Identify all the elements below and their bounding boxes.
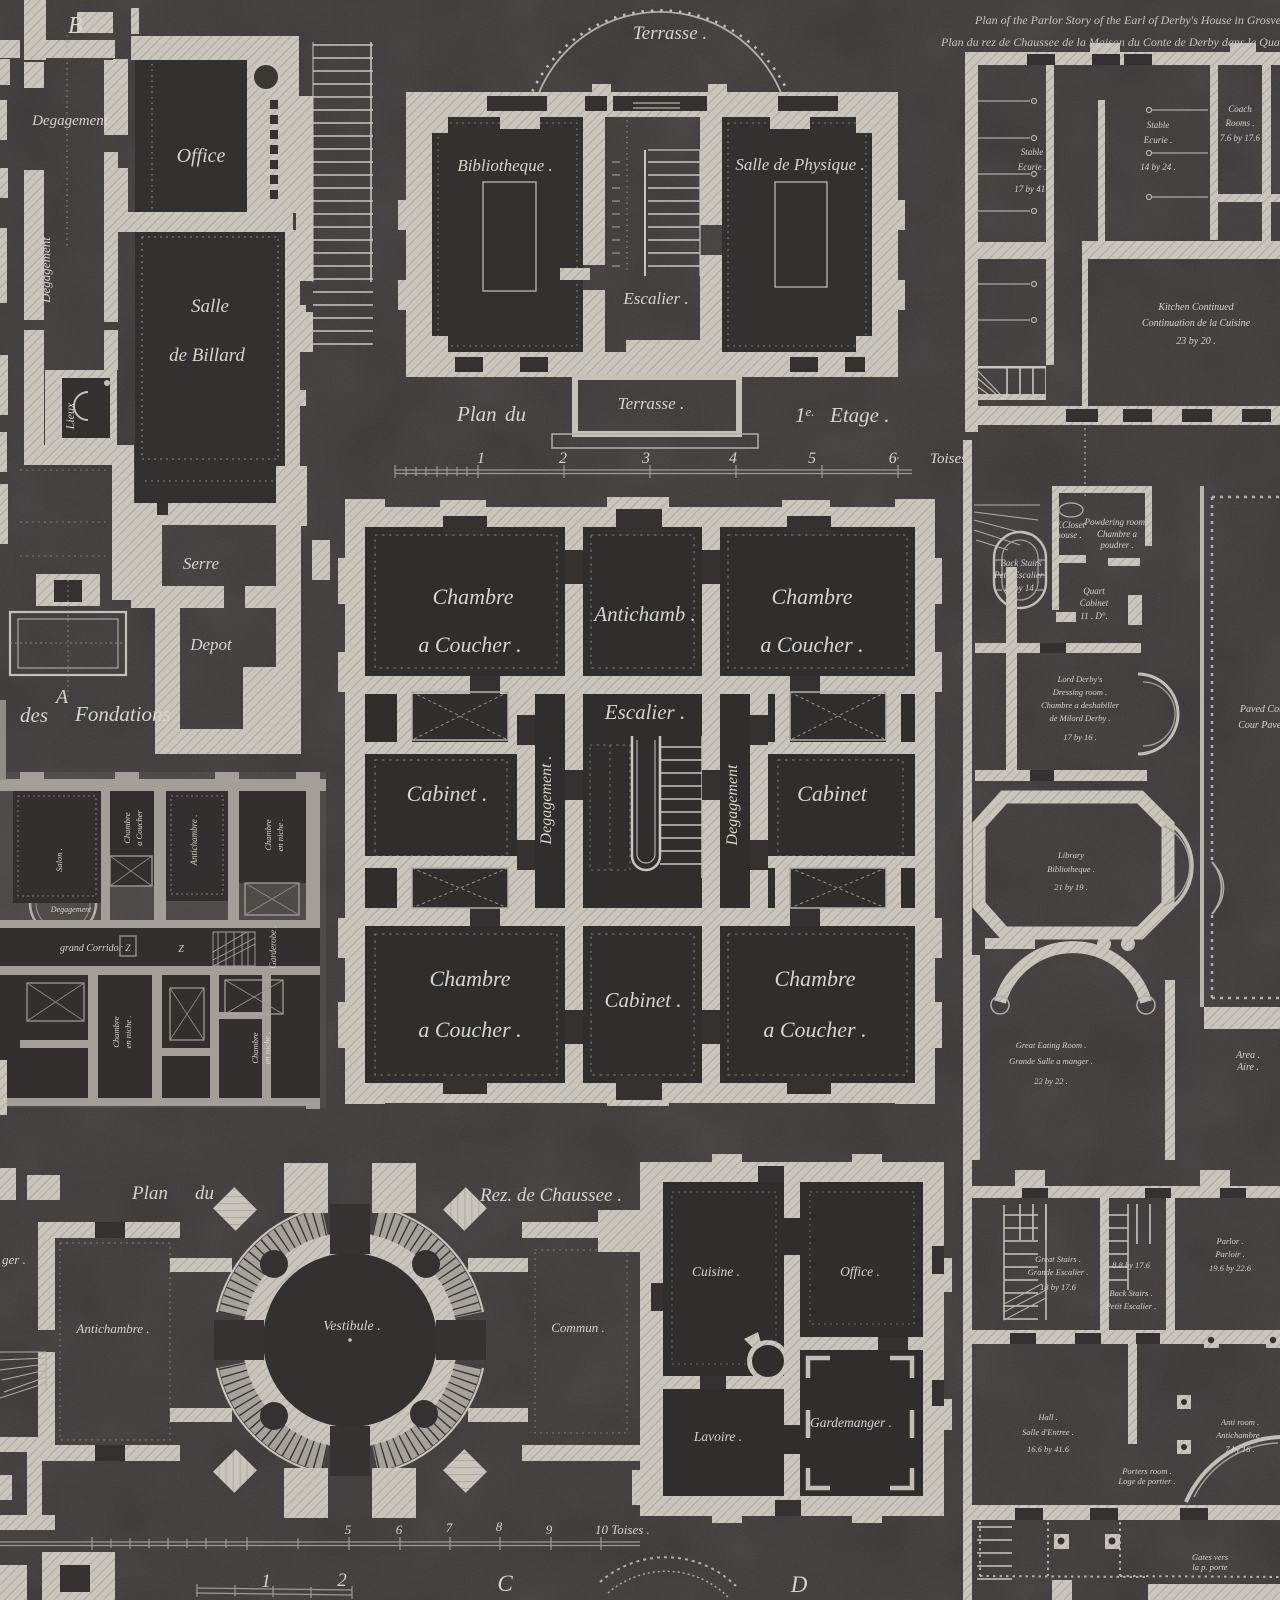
svg-text:Great Eating Room .: Great Eating Room . <box>1016 1040 1087 1050</box>
svg-text:Antichambre .: Antichambre . <box>189 815 199 867</box>
svg-text:6: 6 <box>396 1522 403 1537</box>
svg-text:Terrasse .: Terrasse . <box>618 394 684 413</box>
svg-text:Plan: Plan <box>456 402 497 426</box>
svg-text:Rooms .: Rooms . <box>1225 118 1255 128</box>
svg-text:en niche .: en niche . <box>262 1032 272 1065</box>
svg-text:Ecurie .: Ecurie . <box>1143 135 1173 145</box>
svg-text:Chambre: Chambre <box>111 1016 121 1048</box>
svg-text:14 by 24 .: 14 by 24 . <box>1140 162 1176 172</box>
svg-text:Hall .: Hall . <box>1037 1412 1057 1422</box>
svg-text:Degagement: Degagement <box>724 764 741 846</box>
svg-text:Office .: Office . <box>840 1264 880 1279</box>
svg-text:10 Toises .: 10 Toises . <box>595 1522 650 1537</box>
svg-text:Grande Escalier .: Grande Escalier . <box>1028 1267 1089 1277</box>
svg-text:ger .: ger . <box>2 1252 26 1267</box>
svg-text:Rez. de Chaussee .: Rez. de Chaussee . <box>479 1185 622 1206</box>
svg-text:house .: house . <box>1056 530 1082 540</box>
svg-text:Etage .: Etage . <box>829 403 889 427</box>
svg-text:Degagement .: Degagement . <box>50 905 95 914</box>
svg-text:11 . D°.: 11 . D°. <box>1080 611 1107 621</box>
svg-text:Chambre: Chambre <box>771 584 852 609</box>
svg-text:Chambre a: Chambre a <box>1097 529 1137 539</box>
svg-text:Garderobe .: Garderobe . <box>268 925 278 968</box>
svg-text:3: 3 <box>641 450 650 467</box>
svg-text:1: 1 <box>477 450 485 467</box>
svg-text:poudrer .: poudrer . <box>1099 540 1133 550</box>
svg-text:Great Stairs .: Great Stairs . <box>1035 1254 1081 1264</box>
svg-text:B: B <box>68 13 83 39</box>
svg-text:Cabinet .: Cabinet . <box>605 988 682 1012</box>
svg-text:Dressing room .: Dressing room . <box>1052 687 1107 697</box>
svg-text:Z: Z <box>178 944 184 955</box>
svg-text:17 by 16 .: 17 by 16 . <box>1063 732 1097 742</box>
svg-text:Escalier .: Escalier . <box>622 289 688 308</box>
svg-text:5: 5 <box>808 450 816 467</box>
svg-text:Library: Library <box>1057 850 1084 860</box>
svg-text:W.Closet: W.Closet <box>1053 520 1085 530</box>
svg-text:Bibliotheque .: Bibliotheque . <box>1047 864 1095 874</box>
svg-text:Chambre: Chambre <box>429 966 510 991</box>
svg-text:grand Corridor .: grand Corridor . <box>60 943 128 954</box>
svg-text:19.6 by 22.6: 19.6 by 22.6 <box>1209 1263 1252 1273</box>
svg-text:Cabinet .: Cabinet . <box>407 781 488 806</box>
svg-text:22 by 22 .: 22 by 22 . <box>1034 1076 1068 1086</box>
svg-text:Cuisine .: Cuisine . <box>692 1264 740 1279</box>
svg-text:Cabinet: Cabinet <box>1080 598 1109 608</box>
svg-text:Antichamb .: Antichamb . <box>592 602 695 626</box>
svg-text:du: du <box>195 1183 214 1204</box>
svg-text:a Coucher .: a Coucher . <box>760 632 863 657</box>
svg-text:Anti room .: Anti room . <box>1220 1417 1259 1427</box>
svg-text:Cabinet: Cabinet <box>797 781 868 806</box>
svg-text:Grande Salle a manger .: Grande Salle a manger . <box>1009 1056 1093 1066</box>
svg-text:Vestibule .: Vestibule . <box>323 1319 381 1334</box>
svg-text:Chambre: Chambre <box>432 584 513 609</box>
svg-text:17 by 41 .: 17 by 41 . <box>1014 184 1050 194</box>
svg-text:en niche .: en niche . <box>123 1016 133 1049</box>
svg-text:Chambre: Chambre <box>250 1032 260 1064</box>
svg-text:Porters room .: Porters room . <box>1121 1466 1172 1476</box>
svg-text:18 by 17.6: 18 by 17.6 <box>1040 1282 1076 1292</box>
svg-text:a Coucher .: a Coucher . <box>418 1017 521 1042</box>
svg-text:Aire .: Aire . <box>1236 1062 1259 1073</box>
svg-text:Depot: Depot <box>189 635 233 654</box>
svg-text:Degagement: Degagement <box>31 113 109 129</box>
svg-text:Quart: Quart <box>1083 586 1105 596</box>
svg-text:Gardemanger .: Gardemanger . <box>810 1415 892 1430</box>
svg-text:D: D <box>790 1572 808 1597</box>
svg-text:Kitchen Continued: Kitchen Continued <box>1157 302 1234 313</box>
svg-text:Back Stairs: Back Stairs <box>1000 558 1042 568</box>
svg-text:Chambre: Chambre <box>774 966 855 991</box>
svg-text:de Billard: de Billard <box>169 345 245 366</box>
svg-text:Lord Derby's: Lord Derby's <box>1057 674 1103 684</box>
svg-text:Gates vers: Gates vers <box>1192 1552 1229 1562</box>
svg-text:a Coucher .: a Coucher . <box>418 632 521 657</box>
svg-text:Paved Cou: Paved Cou <box>1239 704 1280 715</box>
svg-text:Antichambre .: Antichambre . <box>75 1321 149 1336</box>
svg-text:Salle d'Entree .: Salle d'Entree . <box>1022 1427 1074 1437</box>
svg-text:8: 8 <box>496 1519 503 1534</box>
svg-text:Terrasse .: Terrasse . <box>633 23 707 44</box>
svg-text:la p. porte: la p. porte <box>1192 1562 1227 1572</box>
svg-text:2: 2 <box>337 1570 347 1591</box>
svg-text:a Coucher .: a Coucher . <box>763 1017 866 1042</box>
svg-text:Cour Pavee: Cour Pavee <box>1238 720 1280 731</box>
svg-text:Commun .: Commun . <box>551 1320 604 1335</box>
svg-text:Parlor .: Parlor . <box>1216 1236 1244 1246</box>
svg-text:16.6 by 41.6: 16.6 by 41.6 <box>1027 1444 1070 1454</box>
svg-text:9: 9 <box>546 1522 553 1537</box>
svg-text:Coach: Coach <box>1228 104 1252 114</box>
svg-text:Chambre: Chambre <box>122 812 132 844</box>
svg-text:Petit Escalier .: Petit Escalier . <box>1105 1301 1157 1311</box>
svg-text:Loge de portier .: Loge de portier . <box>1117 1476 1175 1486</box>
svg-text:C: C <box>497 1571 513 1596</box>
svg-text:Powdering room .: Powdering room . <box>1084 517 1150 527</box>
svg-text:Serre: Serre <box>183 554 220 573</box>
svg-text:Salle de Physique .: Salle de Physique . <box>735 155 864 174</box>
svg-text:23 by 20 .: 23 by 20 . <box>1176 336 1215 347</box>
svg-text:21 by 19 .: 21 by 19 . <box>1054 882 1088 892</box>
svg-text:Chambre: Chambre <box>263 819 273 851</box>
svg-text:des: des <box>20 703 48 727</box>
svg-text:2: 2 <box>559 450 567 467</box>
svg-text:Toises: Toises <box>930 451 967 467</box>
svg-text:Degagement .: Degagement . <box>538 756 555 846</box>
svg-text:en niche .: en niche . <box>275 819 285 852</box>
svg-text:Antichambre .: Antichambre . <box>1215 1430 1264 1440</box>
svg-text:Continuation de la Cuisine: Continuation de la Cuisine <box>1142 318 1251 329</box>
svg-text:7.6 by 17.6: 7.6 by 17.6 <box>1220 133 1260 143</box>
svg-text:Petit Escalier .: Petit Escalier . <box>993 570 1048 580</box>
svg-text:Office: Office <box>177 145 226 167</box>
svg-text:Plan of the Parlor Story of th: Plan of the Parlor Story of the Earl of … <box>974 13 1280 27</box>
svg-text:Chambre a deshabiller: Chambre a deshabiller <box>1041 700 1120 710</box>
svg-text:Ecurie .: Ecurie . <box>1017 162 1047 172</box>
svg-text:Salon .: Salon . <box>54 848 64 872</box>
svg-text:Stable: Stable <box>1021 147 1044 157</box>
svg-text:Lavoire .: Lavoire . <box>693 1429 742 1444</box>
svg-text:de Milord Derby .: de Milord Derby . <box>1049 713 1110 723</box>
svg-text:Salle: Salle <box>191 296 229 317</box>
svg-text:a Coucher: a Coucher <box>134 809 144 845</box>
svg-text:Parloir .: Parloir . <box>1214 1249 1244 1259</box>
svg-text:Back Stairs .: Back Stairs . <box>1109 1288 1152 1298</box>
svg-text:5: 5 <box>345 1522 352 1537</box>
svg-text:Degagement: Degagement <box>38 237 53 304</box>
svg-text:Stable: Stable <box>1147 120 1170 130</box>
svg-text:Escalier .: Escalier . <box>604 700 685 724</box>
svg-text:du: du <box>505 402 526 426</box>
svg-text:A: A <box>54 686 69 708</box>
svg-text:4: 4 <box>729 450 737 467</box>
svg-text:Fondations: Fondations <box>74 702 171 726</box>
svg-text:Area .: Area . <box>1235 1050 1260 1061</box>
svg-text:7: 7 <box>446 1520 453 1535</box>
svg-text:8.8 by 17.6: 8.8 by 17.6 <box>1112 1260 1151 1270</box>
svg-text:Plan: Plan <box>131 1183 168 1204</box>
svg-text:7 by 16 .: 7 by 16 . <box>1225 1444 1254 1454</box>
svg-text:Bibliotheque .: Bibliotheque . <box>457 156 552 175</box>
